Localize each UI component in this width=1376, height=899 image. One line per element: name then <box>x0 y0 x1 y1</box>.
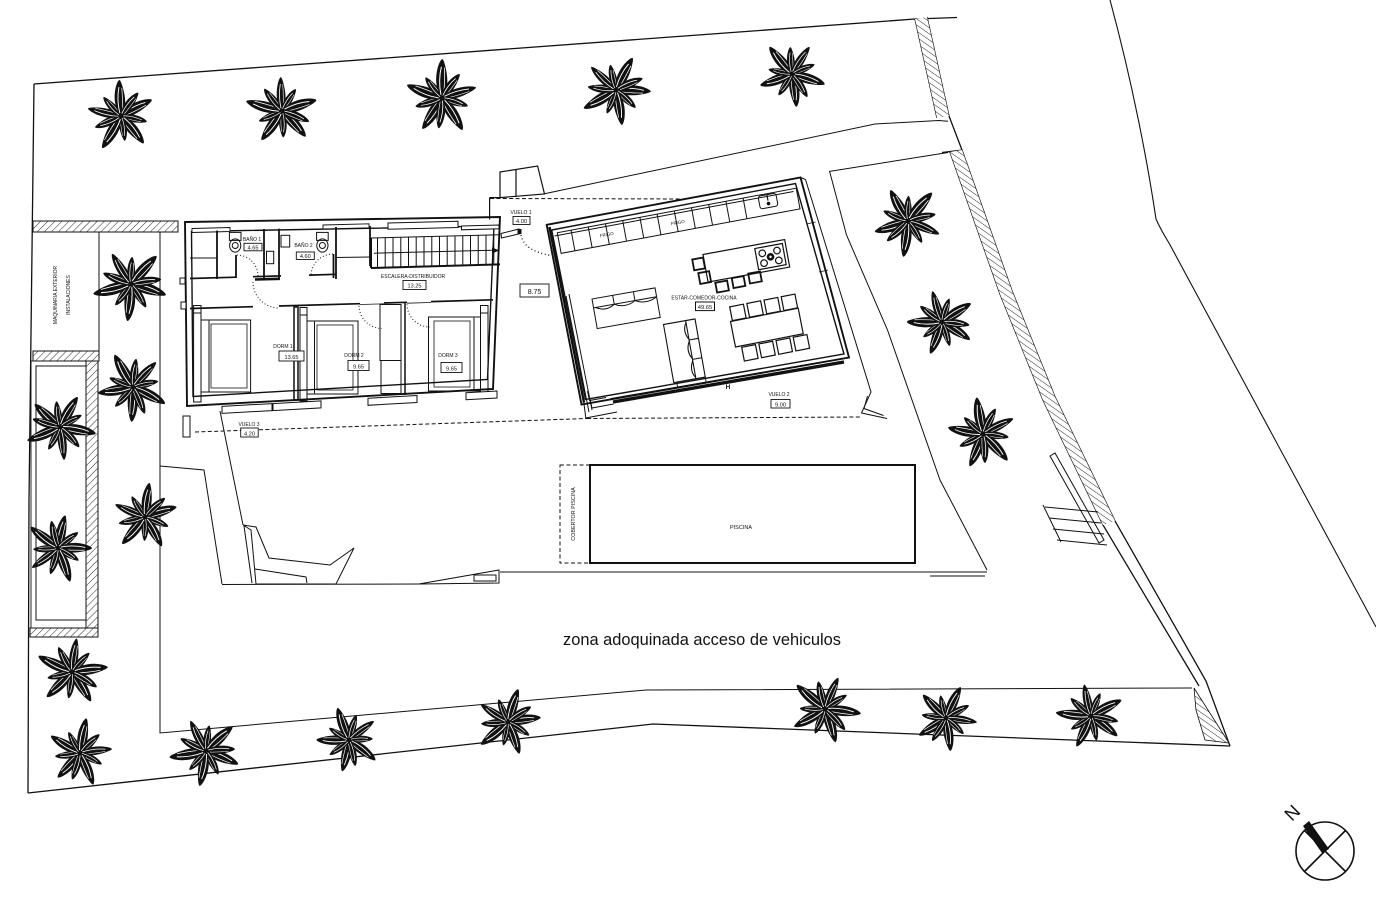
svg-text:DORM 2: DORM 2 <box>344 353 364 359</box>
svg-text:BAÑO 2: BAÑO 2 <box>294 242 313 249</box>
svg-text:9.65: 9.65 <box>446 366 457 372</box>
svg-text:VUELO 1: VUELO 1 <box>510 210 531 216</box>
svg-text:8.75: 8.75 <box>528 289 542 296</box>
svg-text:COBERTOR PISCINA: COBERTOR PISCINA <box>571 487 577 541</box>
svg-text:4.00: 4.00 <box>516 219 527 225</box>
svg-text:MAQUINARIA EXTERIOR: MAQUINARIA EXTERIOR <box>53 265 59 324</box>
svg-text:H: H <box>726 384 731 391</box>
svg-text:4.60: 4.60 <box>300 254 311 260</box>
svg-text:zona adoquinada acceso de vehi: zona adoquinada acceso de vehiculos <box>563 631 841 649</box>
svg-text:ESTAR-COMEDOR-COCINA: ESTAR-COMEDOR-COCINA <box>671 296 737 302</box>
svg-text:DORM 3: DORM 3 <box>438 353 458 359</box>
svg-text:9.65: 9.65 <box>353 364 364 370</box>
svg-text:BAÑO 1: BAÑO 1 <box>243 236 262 243</box>
svg-text:9.00: 9.00 <box>775 403 786 409</box>
svg-text:49.65: 49.65 <box>698 305 713 311</box>
svg-text:INSTALACIONES: INSTALACIONES <box>66 275 72 315</box>
svg-text:ESCALERA-DISTRIBUIDOR: ESCALERA-DISTRIBUIDOR <box>381 274 446 280</box>
svg-text:13.65: 13.65 <box>285 355 299 361</box>
svg-text:13.25: 13.25 <box>408 284 422 290</box>
svg-text:DORM 1: DORM 1 <box>273 344 293 350</box>
svg-text:PISCINA: PISCINA <box>730 525 752 531</box>
svg-text:4.20: 4.20 <box>244 431 255 437</box>
svg-text:4.65: 4.65 <box>248 245 259 251</box>
svg-text:VUELO 3: VUELO 3 <box>238 422 259 428</box>
svg-text:VUELO 2: VUELO 2 <box>768 392 789 398</box>
